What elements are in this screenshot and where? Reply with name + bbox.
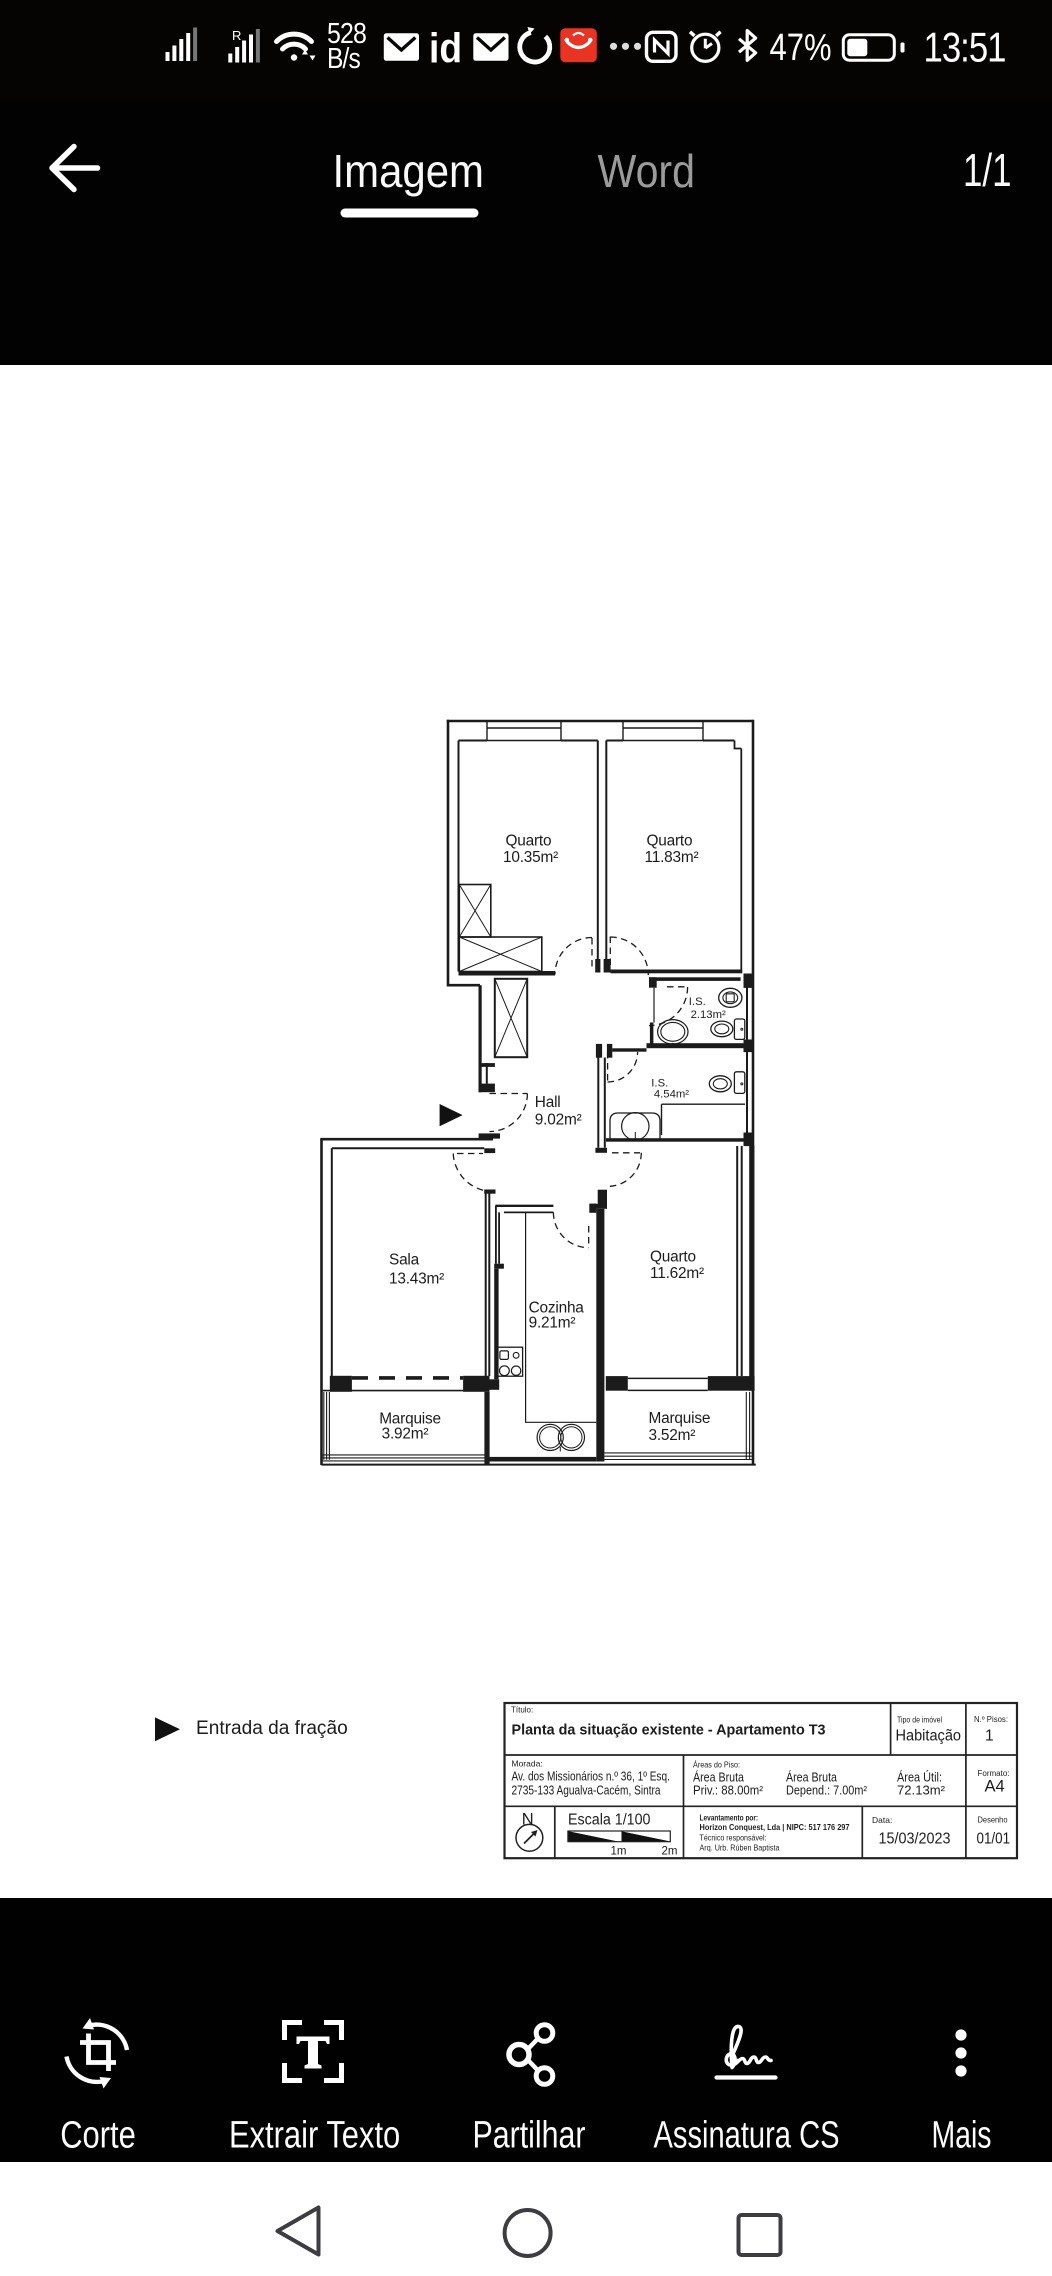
svg-text:9.02m²: 9.02m² <box>535 1112 582 1129</box>
svg-text:1: 1 <box>985 1728 994 1745</box>
svg-text:13:51: 13:51 <box>924 24 1006 71</box>
svg-text:2735-133 Agualva-Cacém, Sintra: 2735-133 Agualva-Cacém, Sintra <box>512 1784 661 1798</box>
svg-text:Mais: Mais <box>932 2115 992 2157</box>
svg-text:Hall: Hall <box>535 1094 561 1111</box>
svg-text:Área Bruta: Área Bruta <box>693 1770 744 1785</box>
svg-text:Levantamento por:: Levantamento por: <box>700 1812 759 1822</box>
svg-text:Depend.: 7.00m²: Depend.: 7.00m² <box>786 1784 867 1798</box>
svg-text:Área Bruta: Área Bruta <box>786 1770 837 1785</box>
svg-text:Priv.: 88.00m²: Priv.: 88.00m² <box>693 1784 763 1798</box>
svg-text:id: id <box>429 25 462 72</box>
svg-text:11.83m²: 11.83m² <box>645 849 699 866</box>
svg-text:Áreas do Piso:: Áreas do Piso: <box>693 1760 740 1770</box>
svg-text:Planta da situação existente -: Planta da situação existente - Apartamen… <box>512 1722 826 1739</box>
svg-text:Título:: Título: <box>511 1706 533 1715</box>
svg-text:Partilhar: Partilhar <box>473 2115 586 2157</box>
svg-text:Marquise: Marquise <box>649 1410 711 1427</box>
svg-text:Data:: Data: <box>872 1815 892 1825</box>
svg-text:Tipo de imóvel: Tipo de imóvel <box>897 1716 942 1725</box>
svg-text:47%: 47% <box>770 27 832 69</box>
svg-text:Arq. Urb. Rúben Baptista: Arq. Urb. Rúben Baptista <box>700 1842 780 1852</box>
svg-text:Morada:: Morada: <box>512 1759 543 1769</box>
svg-text:I.S.: I.S. <box>689 996 706 1008</box>
svg-text:01/01: 01/01 <box>977 1831 1011 1848</box>
svg-text:11.62m²: 11.62m² <box>650 1265 704 1282</box>
svg-text:1/1: 1/1 <box>963 144 1012 196</box>
svg-text:Sala: Sala <box>389 1252 420 1269</box>
svg-text:Word: Word <box>598 145 696 197</box>
svg-text:Área Útil:: Área Útil: <box>897 1770 942 1785</box>
svg-text:Quarto: Quarto <box>506 832 552 849</box>
svg-text:3.92m²: 3.92m² <box>382 1426 429 1443</box>
svg-text:2m: 2m <box>662 1846 678 1858</box>
svg-text:A4: A4 <box>985 1778 1005 1796</box>
svg-text:Quarto: Quarto <box>647 832 693 849</box>
svg-text:72.13m²: 72.13m² <box>897 1784 945 1798</box>
svg-text:2.13m²: 2.13m² <box>691 1009 726 1021</box>
svg-text:Quarto: Quarto <box>650 1248 696 1265</box>
svg-text:10.35m²: 10.35m² <box>503 849 558 866</box>
svg-text:Horizon Conquest, Lda | NIPC:: Horizon Conquest, Lda | NIPC: 517 176 29… <box>700 1822 850 1832</box>
svg-text:Corte: Corte <box>60 2115 136 2157</box>
svg-text:3.52m²: 3.52m² <box>649 1427 696 1444</box>
svg-text:13.43m²: 13.43m² <box>389 1271 444 1288</box>
svg-text:Assinatura CS: Assinatura CS <box>654 2115 840 2157</box>
svg-text:Escala 1/100: Escala 1/100 <box>568 1811 651 1828</box>
svg-text:9.21m²: 9.21m² <box>529 1315 576 1332</box>
svg-text:Desenho: Desenho <box>978 1815 1008 1825</box>
svg-text:R: R <box>232 28 241 43</box>
svg-text:Extrair Texto: Extrair Texto <box>229 2115 400 2157</box>
svg-text:15/03/2023: 15/03/2023 <box>879 1831 951 1848</box>
svg-text:1m: 1m <box>611 1846 627 1858</box>
svg-text:Entrada da fração: Entrada da fração <box>196 1718 348 1739</box>
svg-text:4.54m²: 4.54m² <box>654 1088 689 1100</box>
svg-text:Técnico responsável:: Técnico responsável: <box>700 1832 767 1842</box>
svg-text:B/s: B/s <box>327 43 360 75</box>
svg-text:Av. dos Missionários n.º 36, 1: Av. dos Missionários n.º 36, 1º Esq. <box>512 1770 670 1784</box>
svg-text:Habitação: Habitação <box>896 1728 962 1745</box>
svg-text:N.º Pisos:: N.º Pisos: <box>974 1715 1008 1724</box>
svg-text:Imagem: Imagem <box>333 145 485 197</box>
